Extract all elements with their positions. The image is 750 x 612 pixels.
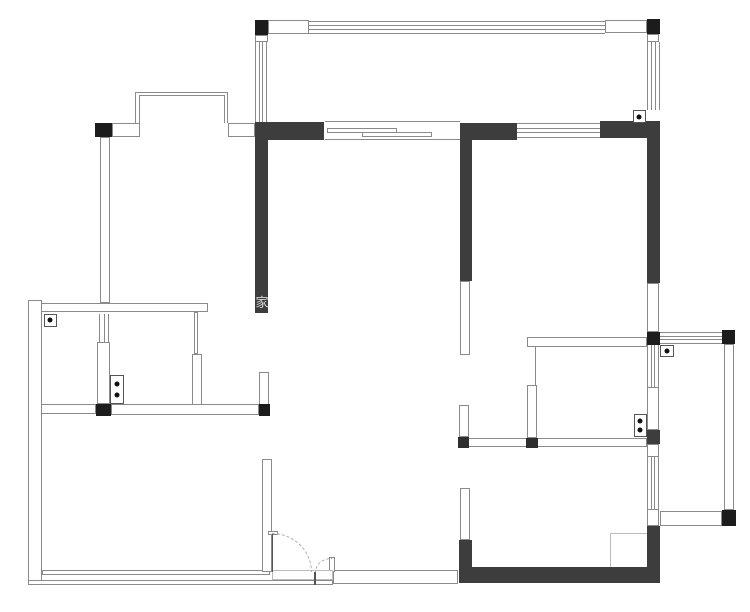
wall-partition [112,123,141,137]
window-mullion-line [651,457,652,509]
socket-symbol [634,414,647,438]
wall-partition [647,509,659,527]
window-mullion-line [104,314,105,342]
wall-partition [268,20,309,34]
window-mullion-line [309,25,606,26]
wall-structural [600,121,660,139]
wall-edge-line [325,121,460,122]
socket-symbol [110,375,124,404]
socket-dot [637,114,642,119]
bay-window [139,95,225,123]
wall-partition [460,488,470,540]
door-leaf-line [314,572,316,585]
wall-structural [647,526,661,571]
window-mullion-line [517,128,601,129]
wall-structural [459,567,661,584]
wall-partition [28,303,208,313]
socket-dot [114,381,119,386]
wall-structural [255,122,324,141]
wall-partition [333,570,458,584]
column-post [259,404,271,416]
window-mullion-line [259,42,260,123]
wall-structural [255,140,268,313]
socket-dot [664,348,669,353]
wall-partition [262,459,272,572]
socket-symbol [44,314,57,327]
wall-partition [647,387,659,431]
socket-dot [638,418,643,423]
wall-structural [460,123,517,140]
watermark-glyph: 家 [256,292,269,311]
door-swing-arc [272,533,312,572]
socket-symbol [660,345,674,357]
window-mullion-line [654,345,655,387]
window-mullion-line [651,42,652,111]
window-mullion-line [517,132,601,133]
window [647,42,660,111]
wall-partition [28,580,333,585]
wall-partition [647,34,659,42]
wall-edge-line [325,139,460,140]
wall-partition [458,438,647,447]
window [517,123,601,138]
wall-partition [28,300,42,585]
wall-partition [724,344,734,511]
wall-partition [194,312,198,354]
window [660,332,722,344]
wall-partition [362,132,433,137]
wall-partition [111,404,259,415]
window-mullion-line [262,42,263,123]
wall-partition [459,405,469,437]
wall-partition [660,511,722,526]
socket-dot [638,427,643,432]
threshold-step [610,533,648,568]
wall-partition [41,404,96,414]
window-mullion-line [309,29,606,30]
column-post [95,123,112,137]
wall-structural [460,140,472,281]
socket-symbol [633,110,647,123]
wall-partition [228,123,256,137]
column-post-small [526,438,538,449]
window [99,314,109,342]
window-mullion-line [660,336,722,337]
wall-partition [647,444,659,458]
wall-edge-line [535,347,536,385]
window-mullion-line [660,339,722,340]
window-mullion-line [655,42,656,111]
socket-dot [48,318,53,323]
column-post [722,330,736,344]
column-post [647,19,660,34]
window-mullion-line [654,457,655,509]
wall-partition [605,20,647,34]
wall-partition [460,281,470,355]
wall-partition [100,137,110,304]
column-post [647,332,661,346]
column-post [96,404,111,416]
wall-partition [97,342,111,404]
window [255,42,268,123]
wall-partition [192,354,202,406]
window [647,345,659,387]
wall-structural [647,138,661,283]
wall-structural [647,430,661,444]
floor-plan: 家 [0,0,750,612]
window [309,21,606,34]
column-post [722,510,737,526]
socket-dot [114,392,119,397]
wall-partition [647,283,660,332]
window [647,457,659,509]
column-post [255,20,268,36]
column-post-small [458,437,470,448]
wall-partition [259,372,269,406]
wall-partition [527,385,537,438]
door-swing-arc [315,558,332,572]
wall-partition [527,337,647,347]
window-mullion-line [651,345,652,387]
wall-partition [42,570,271,576]
